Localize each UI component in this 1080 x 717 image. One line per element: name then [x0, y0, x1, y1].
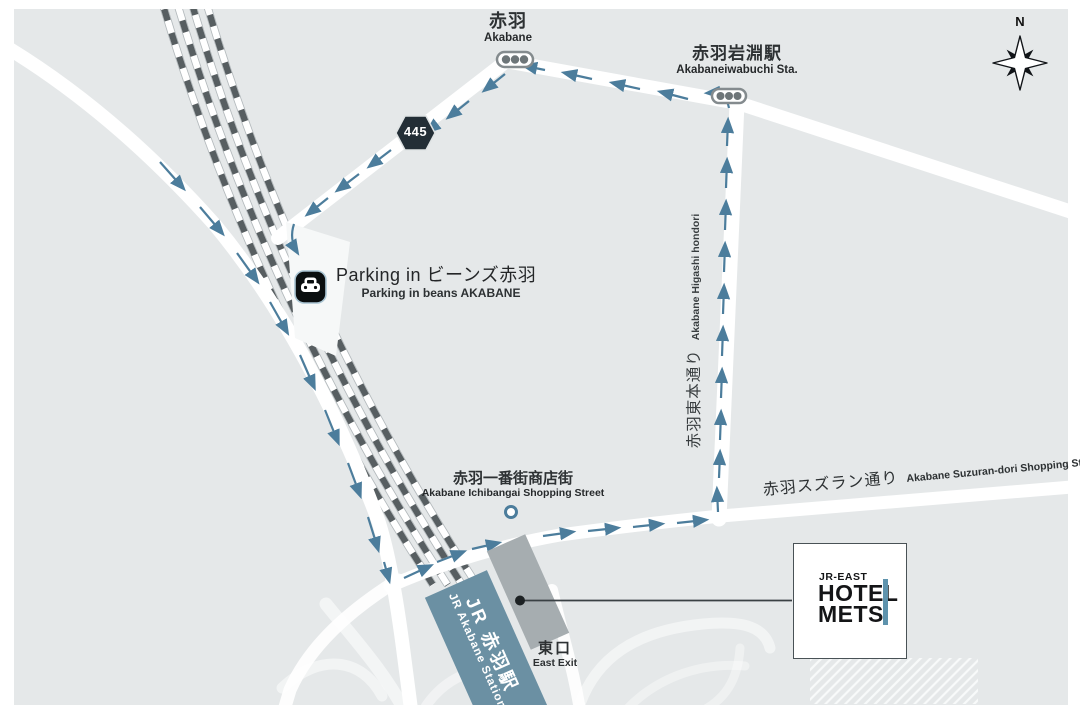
higashi-hondori-road-label: 赤羽東本通りAkabane Higashi hondori — [686, 206, 704, 456]
ichibangai-label-jp: 赤羽一番街商店街 — [413, 470, 613, 487]
akabaneiwabuchi-label-en: Akabaneiwabuchi Sta. — [647, 64, 827, 77]
akabaneiwabuchi-station-marker — [712, 89, 746, 103]
akabane-station-marker — [497, 52, 533, 67]
east-exit-label: 東口 East Exit — [505, 640, 605, 669]
ichibangai-label-en: Akabane Ichibangai Shopping Street — [413, 487, 613, 499]
hotel-logo-bar — [883, 579, 888, 625]
parking-label-jp: Parking in ビーンズ赤羽 — [336, 265, 546, 286]
akabane-label-en: Akabane — [448, 32, 568, 45]
akabane-station-label: 赤羽 Akabane — [448, 11, 568, 45]
hatch-area — [810, 658, 978, 704]
access-map: 赤羽 Akabane 赤羽岩淵駅 Akabaneiwabuchi Sta. 44… — [0, 0, 1080, 717]
higashi-hondori-label-jp: 赤羽東本通り — [686, 349, 703, 448]
route-445-badge-label: 445 — [396, 125, 435, 140]
parking-icon — [295, 271, 326, 303]
compass-north-label: N — [1006, 15, 1034, 30]
parking-label-en: Parking in beans AKABANE — [336, 287, 546, 301]
higashi-hondori-label-en: Akabane Higashi hondori — [690, 214, 702, 341]
ichibangai-point-marker — [506, 507, 517, 518]
east-exit-label-jp: 東口 — [505, 640, 605, 657]
akabaneiwabuchi-station-label: 赤羽岩淵駅 Akabaneiwabuchi Sta. — [647, 44, 827, 77]
map-canvas — [0, 0, 1080, 717]
hotel-logo-box: JR-EAST HOTEL METS — [793, 543, 907, 659]
hotel-location-dot — [515, 596, 525, 606]
parking-label: Parking in ビーンズ赤羽 Parking in beans AKABA… — [336, 265, 546, 300]
akabaneiwabuchi-label-jp: 赤羽岩淵駅 — [647, 44, 827, 64]
ichibangai-street-label: 赤羽一番街商店街 Akabane Ichibangai Shopping Str… — [413, 470, 613, 499]
east-exit-label-en: East Exit — [505, 657, 605, 669]
akabane-label-jp: 赤羽 — [448, 11, 568, 32]
